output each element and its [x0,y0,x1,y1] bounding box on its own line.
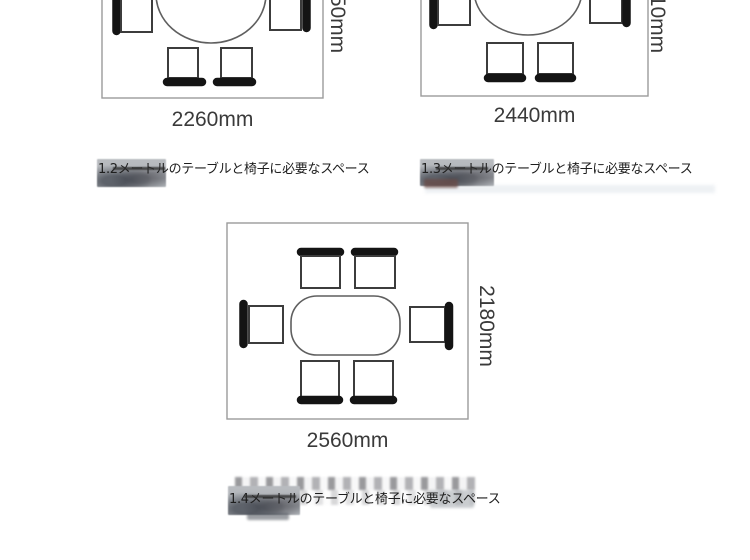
chair-seat [221,48,252,78]
chair-seat [355,256,395,288]
table-top [474,0,582,35]
caption-1-4m: 1.4メートルのテーブルと椅子に必要なスペース [229,491,500,508]
height-dimension-label-1-2m: 50mm [326,0,348,54]
diagram-artwork [0,0,750,560]
chair-seat [487,43,523,74]
chair-seat [538,43,573,74]
chair-seat [270,0,301,30]
watermark-strikethrough [113,167,165,170]
watermark-faint-streak [425,185,715,193]
chair-seat [121,0,152,32]
watermark-strikethrough [244,495,296,498]
height-dimension-label-1-3m: 10mm [646,0,668,54]
diagram-1-2m-layout [102,0,323,98]
chair-seat [354,361,393,397]
chair-seat [438,0,470,25]
furniture-space-diagram-page: 2260mm 50mm 2440mm 10mm 2560mm 2180mm 1.… [0,0,750,560]
chair-seat [590,0,622,23]
chair-seat [301,256,340,288]
table-top [156,0,266,43]
chair-seat [168,48,198,78]
chair-seat [249,306,283,343]
height-dimension-label-1-4m: 2180mm [475,285,497,367]
chair-seat [410,307,445,342]
watermark-strikethrough [436,167,488,170]
diagram-1-4m-layout [227,223,468,419]
width-dimension-label-1-3m: 2440mm [421,105,648,127]
table-top [291,296,400,355]
watermark-smudge [424,179,458,188]
width-dimension-label-1-4m: 2560mm [227,430,468,452]
watermark-smudge [247,513,289,520]
width-dimension-label-1-2m: 2260mm [102,109,323,131]
chair-seat [301,361,339,397]
diagram-1-3m-layout [421,0,648,96]
